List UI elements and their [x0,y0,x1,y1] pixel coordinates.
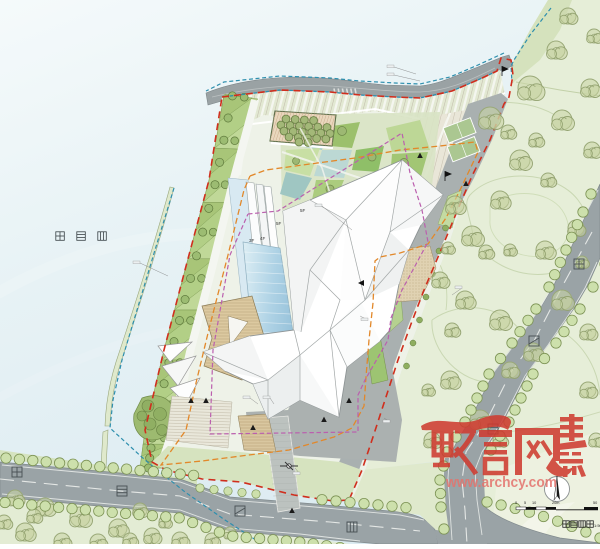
svg-text:www.archcy.com: www.archcy.com [445,474,557,491]
svg-text:0: 0 [515,501,517,505]
svg-text:10: 10 [532,501,536,505]
svg-text:5F: 5F [276,221,282,226]
svg-text:3F: 3F [249,238,255,243]
svg-text:1:500: 1:500 [594,523,600,528]
svg-text:5: 5 [524,501,526,505]
svg-text:4F: 4F [260,236,266,241]
svg-text:5F: 5F [300,208,306,213]
svg-text:50: 50 [593,501,597,505]
svg-text:20m: 20m [552,501,559,505]
